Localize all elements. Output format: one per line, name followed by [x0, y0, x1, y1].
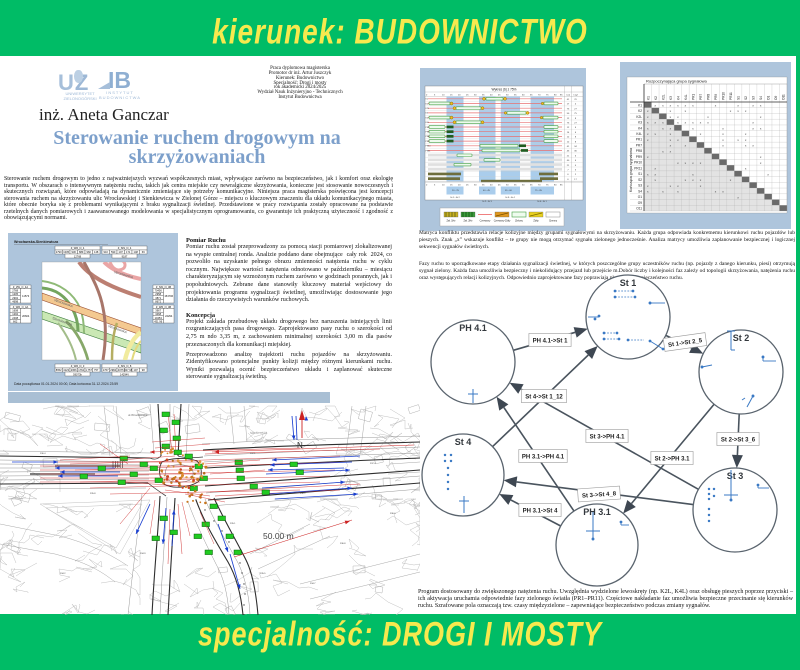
svg-text:St 3 i St 4: St 3 i St 4 [505, 196, 515, 199]
svg-text:154796: 154796 [164, 294, 173, 298]
svg-text:14294V: 14294V [120, 372, 129, 376]
svg-text:St 4->St 1_12: St 4->St 1_12 [525, 395, 563, 401]
svg-text:PR7: PR7 [636, 143, 642, 147]
svg-text:11573: 11573 [22, 294, 30, 298]
svg-text:Kończąca grupa sygnałowa: Kończąca grupa sygnałowa [629, 148, 633, 192]
svg-text:PR1: PR1 [636, 138, 642, 142]
svg-text:O9: O9 [638, 201, 642, 205]
svg-text:S2: S2 [638, 178, 642, 182]
svg-text:K4L: K4L [684, 94, 688, 100]
svg-text:Z_SIN_N_4B: Z_SIN_N_4B [156, 285, 172, 289]
svg-text:K1: K1 [638, 103, 642, 107]
svg-text:St 1: St 1 [620, 278, 637, 288]
svg-text:234.2: 234.2 [60, 573, 66, 575]
svg-text:148: 148 [134, 250, 139, 254]
svg-text:K2L: K2L [636, 115, 642, 119]
svg-text:O11: O11 [636, 207, 642, 211]
svg-text:2790: 2790 [56, 250, 62, 254]
svg-text:S1: S1 [638, 172, 642, 176]
svg-text:S3: S3 [752, 96, 756, 100]
svg-text:1608: 1608 [12, 309, 18, 313]
svg-text:234.7: 234.7 [310, 583, 316, 585]
svg-text:590: 590 [111, 250, 116, 254]
svg-text:236.4: 236.4 [40, 453, 46, 455]
svg-text:St 3: St 3 [727, 471, 744, 481]
svg-text:O11: O11 [782, 94, 786, 100]
svg-text:Z_WR_O_4A: Z_WR_O_4A [13, 305, 29, 309]
svg-text:t wyl: t wyl [573, 94, 578, 97]
svg-text:K2: K2 [654, 96, 658, 100]
svg-text:9187: 9187 [122, 254, 128, 258]
svg-text:Z_WR_N_4: Z_WR_N_4 [71, 246, 85, 250]
svg-text:171: 171 [126, 250, 131, 254]
svg-text:O9: O9 [774, 96, 778, 100]
svg-text:237.1: 237.1 [250, 453, 256, 455]
svg-text:Ciemny: Ciemny [549, 220, 558, 223]
svg-text:40 - 45: 40 - 45 [483, 190, 491, 192]
svg-text:PH 3.1->PH 4.1: PH 3.1->PH 4.1 [522, 455, 565, 461]
svg-text:PR9: PR9 [714, 94, 718, 100]
svg-text:3871: 3871 [155, 296, 161, 300]
svg-text:S2: S2 [744, 96, 748, 100]
svg-text:K4: K4 [676, 96, 680, 100]
svg-text:Sienkiewicza: Sienkiewicza [250, 430, 268, 435]
svg-text:236.2: 236.2 [300, 493, 306, 495]
svg-text:PR9: PR9 [636, 155, 642, 159]
svg-text:20 - 25: 20 - 25 [452, 190, 460, 192]
svg-text:236.8: 236.8 [340, 543, 346, 545]
svg-text:PR11: PR11 [634, 166, 642, 170]
svg-text:Wrocławska-Sienkiewicza: Wrocławska-Sienkiewicza [14, 240, 59, 244]
svg-text:O1: O1 [638, 195, 642, 199]
svg-text:Z_WR_N_4B: Z_WR_N_4B [156, 305, 172, 309]
svg-text:937 98: 937 98 [124, 368, 132, 372]
svg-text:1,757: 1,757 [85, 368, 92, 372]
svg-text:4123: 4123 [63, 368, 69, 372]
svg-text:K4: K4 [638, 126, 642, 130]
svg-text:234.9: 234.9 [140, 553, 146, 555]
svg-text:2956: 2956 [71, 368, 77, 372]
svg-text:N: N [297, 441, 303, 450]
svg-text:8672: 8672 [155, 299, 161, 303]
svg-text:S4: S4 [638, 189, 642, 193]
svg-text:3468: 3468 [155, 312, 161, 316]
svg-text:1292: 1292 [12, 312, 18, 316]
svg-text:PR8: PR8 [636, 149, 642, 153]
svg-text:Z_SIN_N_4: Z_SIN_N_4 [118, 246, 132, 250]
svg-text:Data początkowa 01.01.2024 00:: Data początkowa 01.01.2024 00:00, Data k… [14, 382, 118, 386]
svg-text:PH 3.1->St 4: PH 3.1->St 4 [523, 509, 559, 515]
svg-text:PR10: PR10 [722, 92, 726, 100]
svg-text:Zał. 1Hz: Zał. 1Hz [447, 220, 457, 223]
svg-text:235.1: 235.1 [230, 523, 236, 525]
svg-text:Rozpoczynająca grupa sygnałowa: Rozpoczynająca grupa sygnałowa [646, 79, 707, 84]
svg-text:S1: S1 [737, 96, 741, 100]
svg-text:Zał. 2Hz: Zał. 2Hz [464, 220, 474, 223]
svg-text:237.4: 237.4 [370, 463, 376, 465]
svg-text:K3: K3 [669, 96, 673, 100]
svg-text:2958: 2958 [155, 292, 161, 296]
svg-text:Z_WR_N_3: Z_WR_N_3 [71, 364, 85, 368]
svg-text:K4L: K4L [636, 132, 642, 136]
svg-text:S4: S4 [759, 96, 763, 100]
svg-text:S3: S3 [638, 184, 642, 188]
svg-text:1035: 1035 [63, 250, 69, 254]
svg-text:930: 930 [72, 250, 77, 254]
svg-text:Czerwony: Czerwony [480, 220, 491, 223]
svg-text:2984: 2984 [110, 368, 116, 372]
svg-text:PR1: PR1 [691, 94, 695, 100]
svg-text:PR10: PR10 [426, 146, 432, 148]
svg-text:PR10: PR10 [634, 161, 642, 165]
svg-text:50.00 m: 50.00 m [263, 531, 294, 541]
svg-text:St 2 i St 3: St 2 i St 3 [482, 200, 492, 203]
svg-text:235.8: 235.8 [90, 493, 96, 495]
svg-text:12768: 12768 [74, 254, 82, 258]
svg-text:889: 889 [79, 250, 84, 254]
svg-text:K2L: K2L [661, 94, 665, 100]
svg-text:757: 757 [94, 368, 99, 372]
svg-text:K1: K1 [646, 96, 650, 100]
svg-text:431 96: 431 96 [154, 319, 162, 323]
svg-text:PH 3.1: PH 3.1 [583, 507, 611, 517]
svg-text:O1: O1 [767, 96, 771, 100]
svg-text:2768: 2768 [12, 289, 18, 293]
svg-text:197: 197 [134, 368, 139, 372]
svg-text:2408: 2408 [12, 316, 18, 320]
svg-text:Z_ZW_O_4A: Z_ZW_O_4A [13, 285, 28, 289]
svg-text:St 3->PH 4.1: St 3->PH 4.1 [590, 435, 626, 441]
svg-text:Zielony: Zielony [515, 220, 524, 223]
svg-text:St 4 i St 1: St 4 i St 1 [537, 200, 547, 203]
svg-text:8652: 8652 [56, 368, 62, 372]
svg-text:59073b: 59073b [73, 372, 82, 376]
svg-text:75 - 85: 75 - 85 [535, 190, 543, 192]
svg-text:1767: 1767 [103, 368, 109, 372]
svg-text:Wykres |S| z 75%: Wykres |S| z 75% [491, 88, 516, 92]
svg-text:t zal: t zal [566, 94, 571, 97]
svg-text:K2: K2 [638, 109, 642, 113]
svg-text:Z_SIN_N_8: Z_SIN_N_8 [118, 364, 132, 368]
svg-text:1762: 1762 [78, 368, 84, 372]
svg-text:2902: 2902 [12, 296, 18, 300]
svg-text:Żółty: Żółty [533, 220, 539, 223]
svg-text:PR8: PR8 [706, 94, 710, 100]
svg-text:K3: K3 [638, 121, 642, 125]
svg-text:St 2->PH 3.1: St 2->PH 3.1 [655, 457, 691, 463]
svg-text:St 4: St 4 [455, 437, 472, 447]
svg-text:4698: 4698 [12, 299, 18, 303]
svg-text:662: 662 [13, 319, 18, 323]
svg-text:910: 910 [104, 250, 109, 254]
svg-text:PH 4.1->St 1: PH 4.1->St 1 [533, 339, 569, 345]
svg-text:20604: 20604 [22, 314, 30, 318]
svg-text:236.0: 236.0 [390, 513, 396, 515]
svg-text:960: 960 [87, 250, 92, 254]
svg-text:4075: 4075 [118, 368, 124, 372]
svg-text:70456: 70456 [155, 289, 163, 293]
svg-text:235.5: 235.5 [260, 573, 266, 575]
svg-text:148: 148 [94, 250, 99, 254]
svg-text:ul.Wrocławska: ul.Wrocławska [128, 413, 148, 417]
svg-text:24294: 24294 [165, 314, 173, 318]
svg-text:107: 107 [119, 250, 124, 254]
svg-text:St 2->St 3_6: St 2->St 3_6 [721, 438, 756, 444]
svg-text:St 2: St 2 [733, 333, 750, 343]
svg-text:1205: 1205 [12, 292, 18, 296]
svg-text:PR7: PR7 [699, 94, 703, 100]
svg-text:PR11: PR11 [729, 92, 733, 100]
svg-text:10453: 10453 [155, 316, 163, 320]
svg-text:3967: 3967 [155, 309, 161, 313]
svg-text:55 - 60: 55 - 60 [505, 190, 513, 192]
svg-text:PH 4.1: PH 4.1 [459, 323, 487, 333]
svg-text:Czerwony-Żółty: Czerwony-Żółty [494, 220, 511, 223]
svg-text:St 1 i St 2: St 1 i St 2 [450, 196, 460, 199]
